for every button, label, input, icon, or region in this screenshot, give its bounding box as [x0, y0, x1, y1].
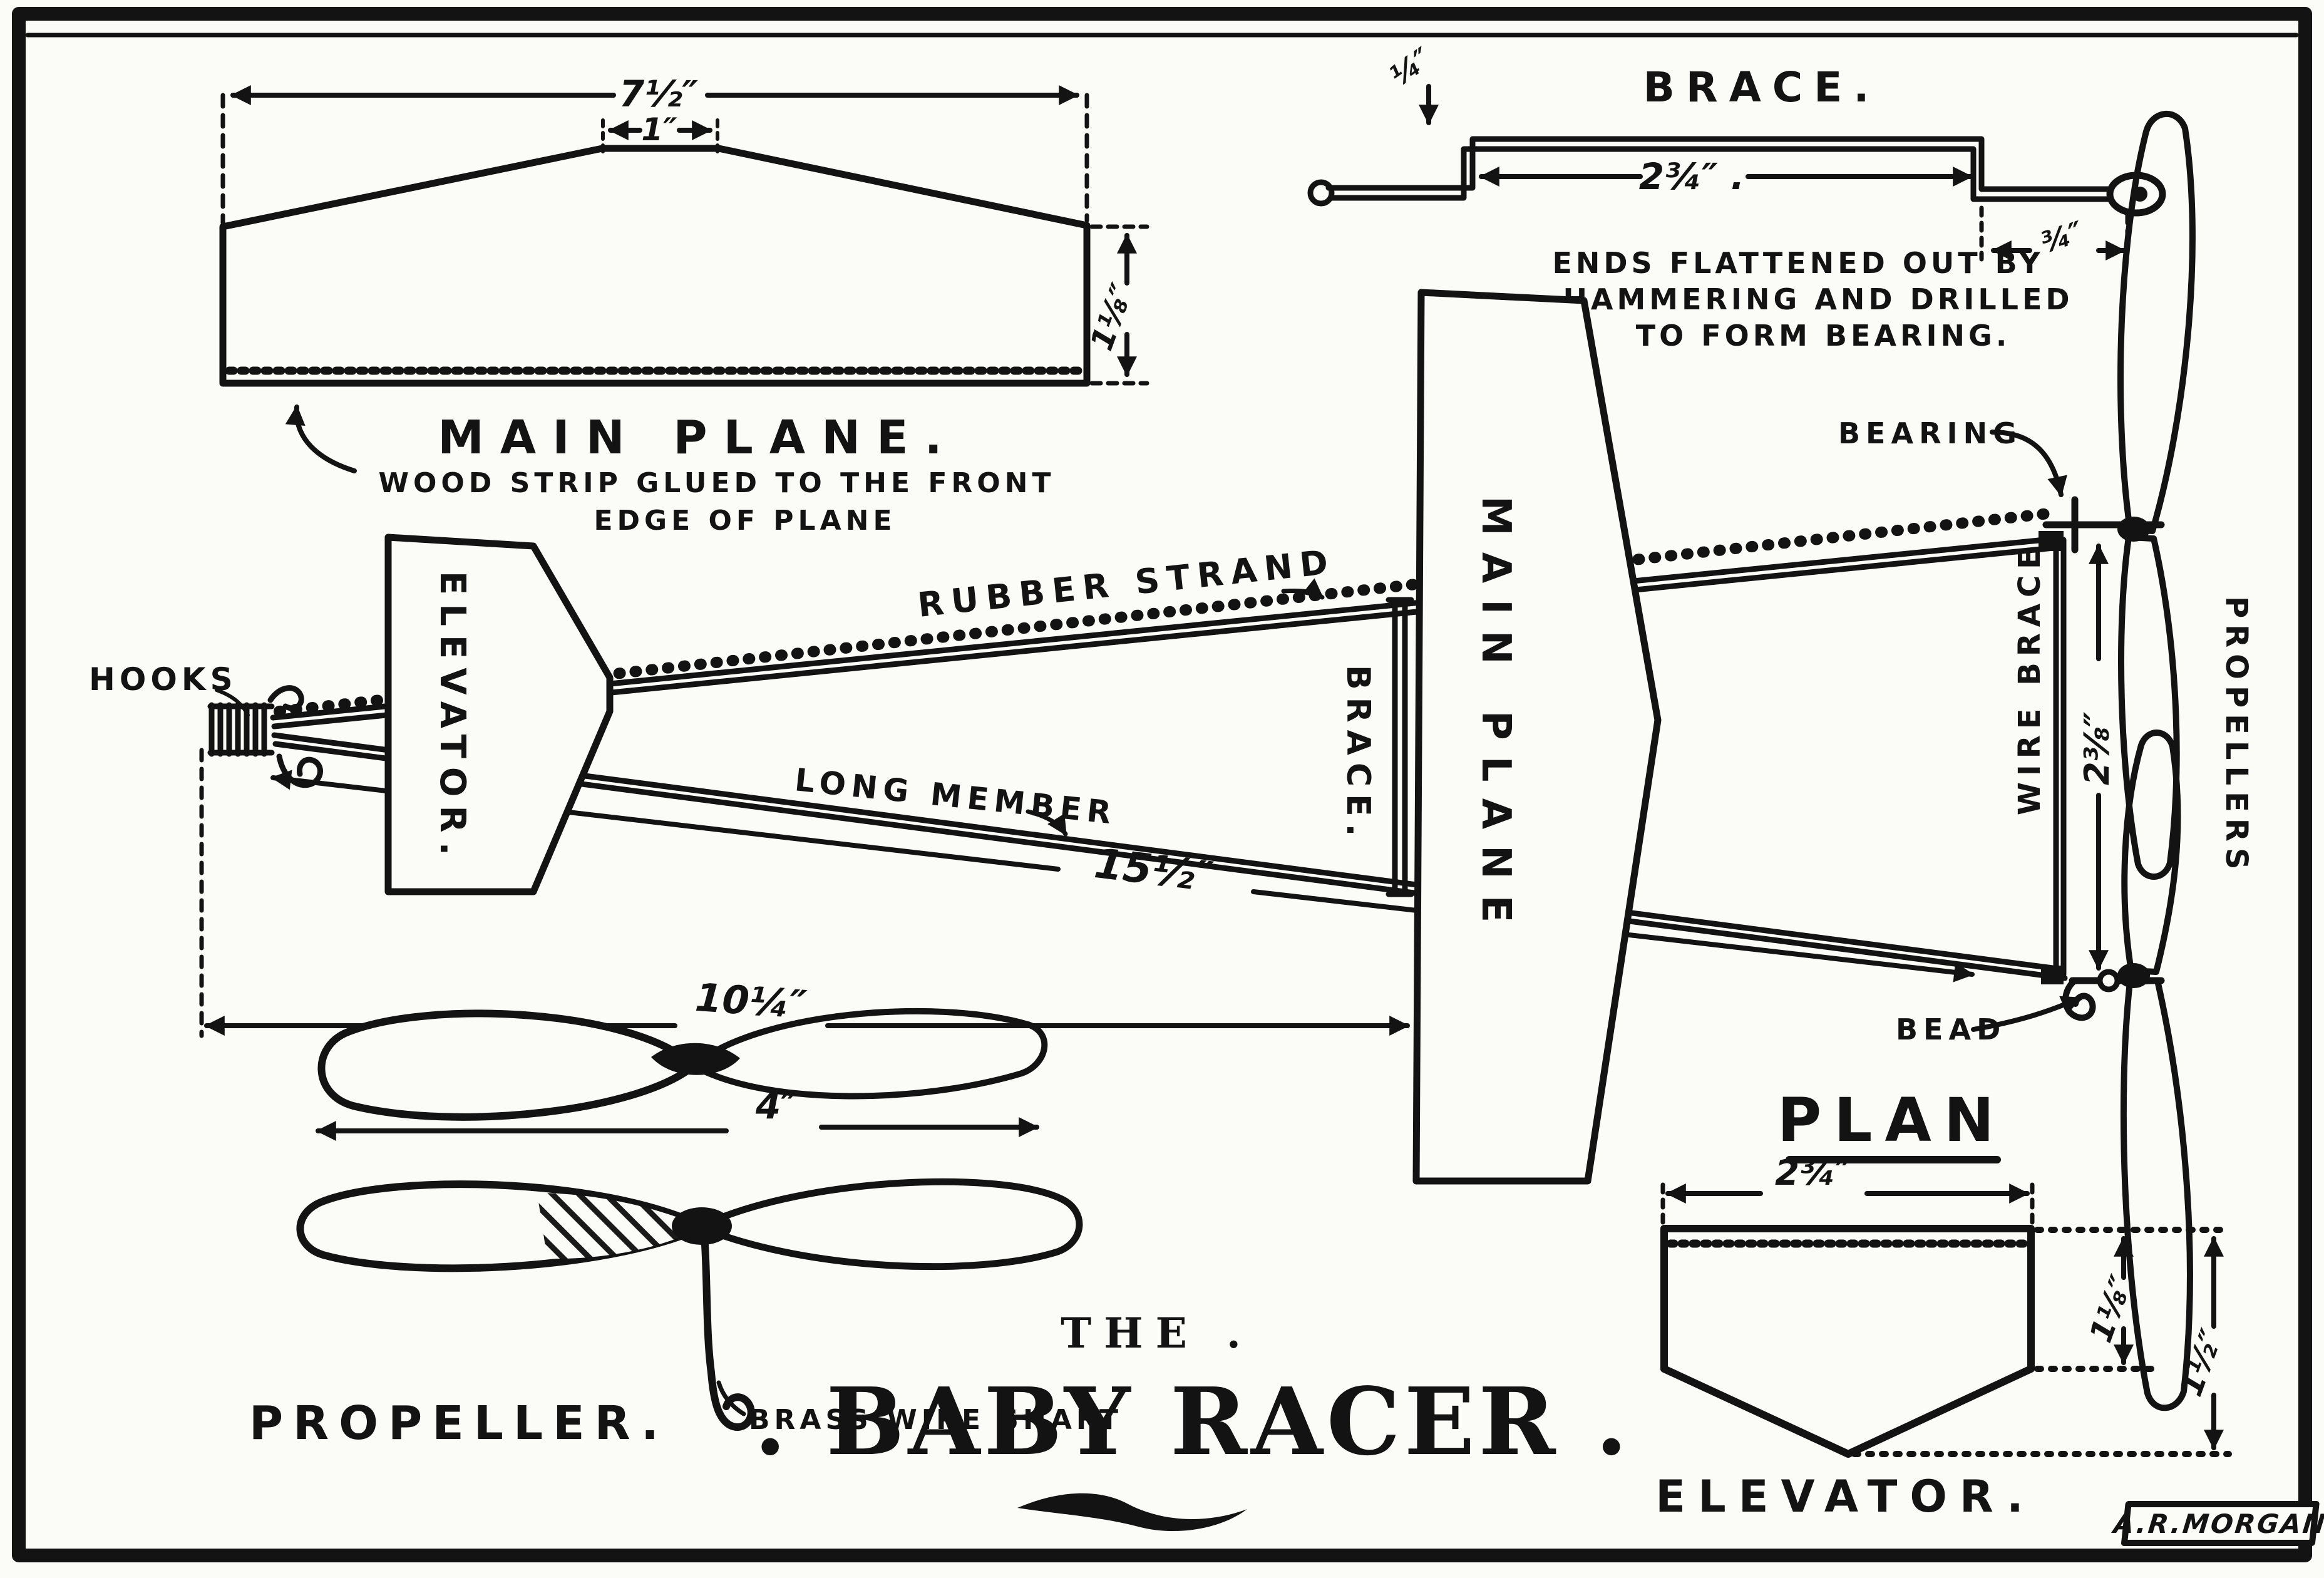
top-bearing-block: [2039, 531, 2064, 551]
title-main: . BABY RACER .: [754, 1367, 1631, 1476]
prop-front-hub: [672, 1207, 732, 1245]
main-plane-caption: MAIN PLANE.: [438, 411, 958, 465]
propeller-caption: PROPELLER.: [249, 1396, 669, 1450]
bottom-prop-hub: [2117, 963, 2150, 988]
elevator-total-label: 1½″: [2172, 1324, 2230, 1401]
elevator-detail: 2¾″ 1⅛″ 1½″ ELEVATOR.: [1655, 1153, 2230, 1522]
plan-brace-label: BRACE.: [1339, 665, 1377, 843]
signature-text: A.R.MORGAN: [2111, 1508, 2324, 1539]
brace-note-2: HAMMERING AND DRILLED: [1563, 282, 2073, 316]
brace-left-eye: [1310, 182, 1332, 204]
title-pre: THE .: [1061, 1309, 1253, 1358]
plan-elevator-label: ELEVATOR.: [432, 571, 473, 864]
plan-caption: PLAN: [1777, 1085, 2007, 1155]
plan-main-plane-label: MAIN PLANE: [1473, 496, 1519, 939]
bottom-bearing-block: [2041, 966, 2064, 984]
main-plane-detail: 7½″ 1″ 1⅛″ MAIN PLANE. WOOD STRIP GLUED …: [223, 73, 1147, 537]
dim-overall-label: 15½″: [1092, 839, 1216, 902]
elevator-width-label: 2¾″: [1775, 1153, 1851, 1194]
top-prop-hub: [2117, 517, 2150, 542]
main-plane-span-dim: 7½″: [619, 73, 698, 115]
brace-end-dim: ¾″: [2036, 214, 2087, 260]
brace-caption: BRACE.: [1643, 63, 1881, 111]
dim-prop-diameter-label: 4″: [755, 1085, 797, 1127]
title-block: THE . . BABY RACER .: [754, 1309, 1631, 1531]
rubber-strand-label: RUBBER STRAND: [916, 542, 1337, 625]
brace-note-3: TO FORM BEARING.: [1636, 319, 2011, 353]
dim-body-label: 10¼″: [694, 974, 808, 1028]
prop-side-left-blade: [321, 1014, 694, 1117]
main-plane-outline: [223, 148, 1087, 383]
bead-shape: [2100, 972, 2117, 989]
wire-brace-label: WIRE BRACE: [2012, 542, 2047, 815]
drawing-sheet: 7½″ 1″ 1⅛″ MAIN PLANE. WOOD STRIP GLUED …: [0, 0, 2324, 1578]
main-plane-center-dim: 1″: [641, 111, 677, 148]
baby-racer-plan-drawing: 7½″ 1″ 1⅛″ MAIN PLANE. WOOD STRIP GLUED …: [0, 0, 2324, 1578]
main-plane-note-1: WOOD STRIP GLUED TO THE FRONT: [378, 467, 1055, 499]
main-plane-chord-dim: 1⅛″: [1083, 278, 1141, 355]
plan-brace-bar: [1389, 600, 1411, 894]
elevator-outline: [1664, 1229, 2031, 1454]
top-hook: [270, 688, 301, 708]
propellers-label: PROPELLERS: [2219, 596, 2254, 875]
wood-strip-pointer: [297, 407, 354, 471]
bottom-prop-lower-blade: [2124, 981, 2190, 1408]
elevator-caption: ELEVATOR.: [1655, 1471, 2035, 1522]
plan-main-plane-outline: [1416, 292, 1658, 1181]
long-member-label: LONG MEMBER: [793, 761, 1119, 832]
dim-prop-gap-label: 2⅜″: [2077, 711, 2117, 785]
wire-brace-lines: [2056, 540, 2064, 974]
signature-block: A.R.MORGAN: [2110, 1504, 2324, 1543]
prop-front-right-blade: [704, 1182, 1079, 1266]
main-plane-note-2: EDGE OF PLANE: [594, 505, 896, 537]
hooks-label: HOOKS: [89, 661, 237, 698]
plan-elevator-outline: [388, 537, 610, 892]
title-swash: [1017, 1493, 1247, 1531]
brace-note-1: ENDS FLATTENED OUT BY: [1552, 246, 2044, 280]
brace-span-dim: 2¾″ .: [1639, 155, 1745, 198]
bead-label: BEAD: [1896, 1013, 2006, 1046]
